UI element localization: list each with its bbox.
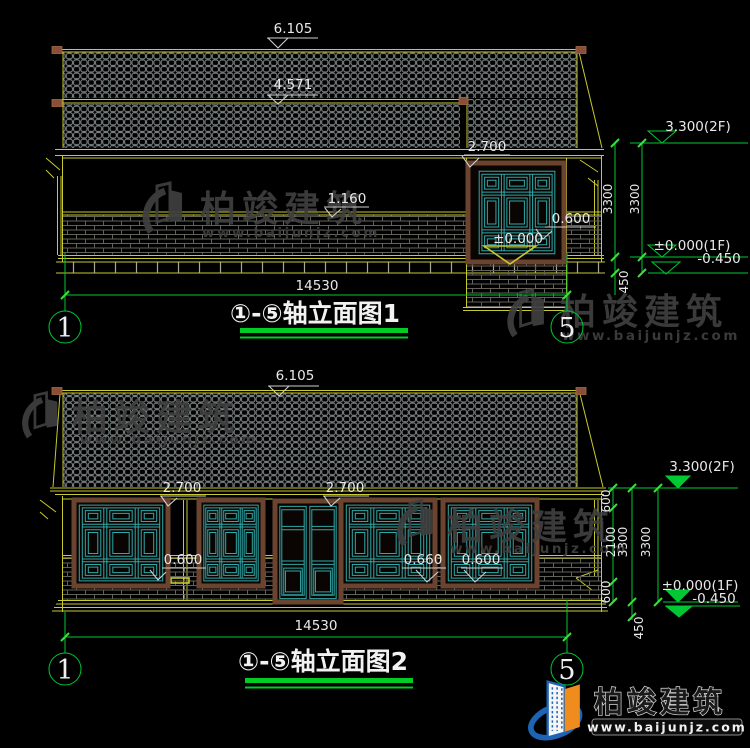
drawing-1-title: ①-⑤轴立面图1 [230,299,400,328]
dim-plinth: 450 [617,271,631,294]
dim-ridge: 6.105 [274,21,313,37]
watermark-brand: 柏竣建筑 [560,292,728,333]
dim-sill-left: 0.600 [164,552,203,568]
watermark-url: www.baijunjz.com [80,432,258,448]
level-2f: 3.300(2F) [669,459,735,475]
axis-number-1: 1 [56,655,73,686]
dim-sill-height: 600 [599,581,613,604]
dim-head-right: 2.700 [326,480,365,496]
cad-sheet: 柏竣建筑 www.baijunjz.com 柏竣建筑 www.baijunjz.… [0,0,750,748]
dim-floor: ±0.000 [493,231,543,247]
watermark-url: www.baijunjz.com [202,225,380,241]
dim-sill-right: 0.600 [462,552,501,568]
dim-story-a: 3300 [601,184,615,215]
title-underline-thin [240,337,408,339]
brand-logo: 柏竣建筑 www.baijunjz.com [526,682,747,745]
axis-number-1: 1 [56,313,73,344]
watermark-url: www.baijunjz.com [562,328,740,344]
dim-head-left: 2.700 [163,480,202,496]
dim-ridge: 6.105 [276,368,315,384]
dim-sill-mid: 0.660 [404,552,443,568]
dim-band: 1.160 [328,191,367,207]
level-ground: -0.450 [692,591,736,607]
level-2f: 3.300(2F) [665,119,731,135]
axis-number-5: 5 [558,655,575,686]
dim-story-b: 3300 [628,184,642,215]
title-underline-thin [245,687,413,689]
drawing-2-title: ①-⑤轴立面图2 [238,647,408,676]
dim-total-width: 14530 [295,618,338,634]
dim-story-a: 3300 [616,527,630,558]
dim-lower-ridge: 4.571 [274,77,313,93]
brand-logo-text: 柏竣建筑 [594,685,726,719]
axis-number-5: 5 [558,313,575,344]
brand-logo-url: www.baijunjz.com [587,720,747,735]
door-frame [275,501,341,602]
dim-sill: 0.600 [552,211,591,227]
title-underline-thick [245,678,413,683]
dim-total-width: 14530 [296,278,339,294]
dim-story-b: 3300 [639,527,653,558]
elevation-sheet: 柏竣建筑 www.baijunjz.com 柏竣建筑 www.baijunjz.… [0,0,750,748]
dim-head-height: 600 [599,490,613,513]
dim-plinth: 450 [632,617,646,640]
dim-window-head: 2.700 [468,139,507,155]
level-ground: -0.450 [697,251,741,267]
title-underline-thick [240,328,408,333]
